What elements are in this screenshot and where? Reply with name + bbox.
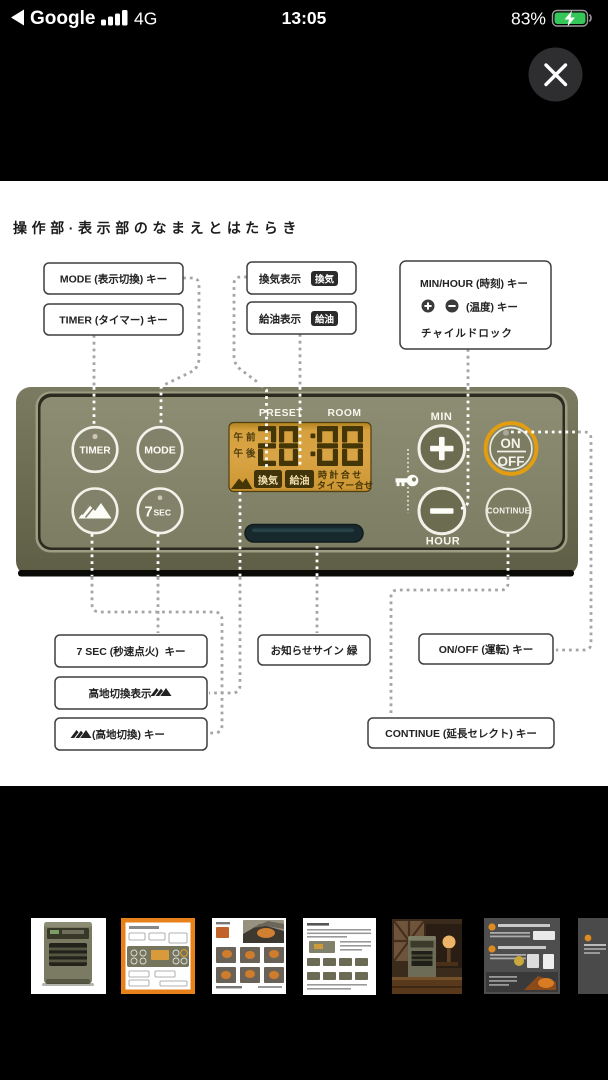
svg-text:操作部·表示部のなまえとはたらき: 操作部·表示部のなまえとはたらき [13, 220, 301, 236]
svg-text:お知らせサイン 緑: お知らせサイン 緑 [271, 644, 358, 657]
svg-text:OFF: OFF [498, 454, 525, 469]
svg-text:換気表示: 換気表示 [259, 273, 301, 286]
svg-text:Google: Google [30, 8, 95, 29]
svg-text:時計合せ: 時計合せ [318, 469, 364, 480]
svg-text:83%: 83% [511, 9, 546, 29]
svg-text:ON: ON [500, 436, 520, 451]
svg-text:MIN: MIN [431, 411, 453, 423]
svg-text:給油: 給油 [315, 314, 334, 326]
svg-text:ROOM: ROOM [327, 408, 361, 419]
svg-text:SEC: SEC [154, 508, 171, 518]
svg-text:(高地切換) キー: (高地切換) キー [92, 728, 165, 741]
svg-text:換気: 換気 [258, 474, 278, 487]
svg-text:午後: 午後 [234, 448, 259, 460]
svg-text:4G: 4G [134, 9, 157, 29]
svg-text:HOUR: HOUR [426, 536, 460, 548]
svg-text:換気: 換気 [315, 274, 335, 286]
svg-text:給油表示: 給油表示 [259, 313, 301, 326]
svg-text:7 SEC (秒速点火) キー: 7 SEC (秒速点火) キー [76, 645, 185, 658]
svg-text:MODE: MODE [144, 445, 176, 457]
svg-text:7: 7 [145, 505, 153, 521]
svg-text:ON/OFF (運転) キー: ON/OFF (運転) キー [439, 643, 534, 656]
svg-text:MODE (表示切換) キー: MODE (表示切換) キー [60, 273, 167, 286]
svg-text:TIMER: TIMER [79, 446, 111, 457]
svg-text:CONTINUE (延長セレクト) キー: CONTINUE (延長セレクト) キー [385, 727, 537, 740]
svg-text:高地切換表示: 高地切換表示 [89, 687, 152, 700]
svg-text:TIMER (タイマー) キー: TIMER (タイマー) キー [59, 315, 168, 327]
svg-text:午前: 午前 [234, 432, 259, 444]
svg-text:MIN/HOUR (時刻) キー: MIN/HOUR (時刻) キー [420, 277, 528, 290]
svg-text:13:05: 13:05 [282, 8, 327, 28]
svg-text:(温度) キー: (温度) キー [466, 301, 518, 314]
svg-text:CONTINUE: CONTINUE [487, 507, 531, 516]
svg-text:タイマー合せ: タイマー合せ [317, 480, 373, 491]
svg-text:チャイルドロック: チャイルドロック [421, 328, 513, 340]
svg-text:給油: 給油 [290, 474, 310, 487]
